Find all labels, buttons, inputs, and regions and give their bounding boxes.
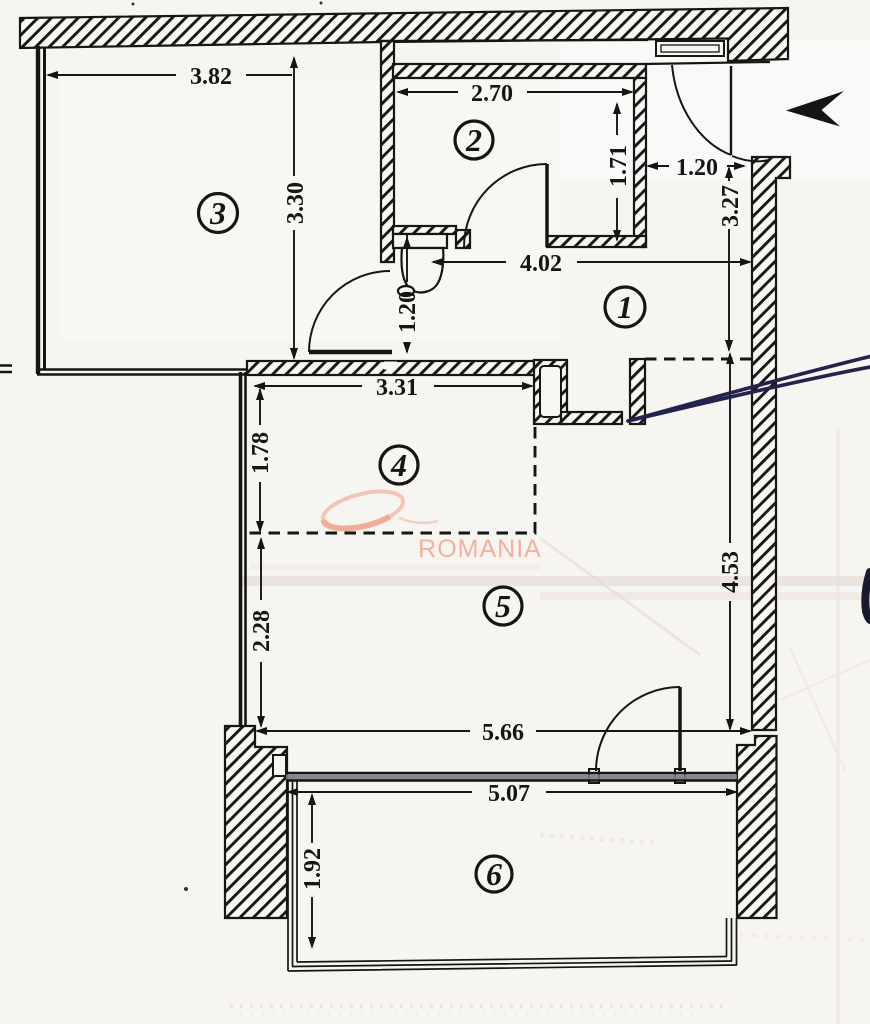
svg-text:1.78: 1.78 — [248, 432, 274, 474]
svg-text:6: 6 — [486, 856, 502, 892]
svg-text:3.31: 3.31 — [376, 375, 418, 401]
svg-text:4.53: 4.53 — [718, 551, 744, 593]
svg-text:2.28: 2.28 — [249, 610, 275, 652]
svg-text:4.02: 4.02 — [520, 251, 562, 277]
svg-text:3.27: 3.27 — [718, 185, 744, 227]
svg-text:1.20: 1.20 — [676, 155, 718, 181]
svg-text:4: 4 — [390, 447, 407, 483]
svg-text:1.92: 1.92 — [300, 848, 326, 890]
svg-text:ROMANIA: ROMANIA — [418, 535, 542, 563]
svg-text:2.70: 2.70 — [471, 81, 513, 107]
svg-text:5.07: 5.07 — [488, 781, 530, 807]
svg-text:3.30: 3.30 — [283, 182, 309, 224]
svg-text:5.66: 5.66 — [482, 720, 524, 746]
svg-text:3.82: 3.82 — [190, 64, 232, 90]
svg-text:5: 5 — [495, 588, 511, 624]
svg-text:1: 1 — [617, 289, 633, 325]
svg-text:1.71: 1.71 — [606, 145, 632, 187]
svg-text:3: 3 — [209, 195, 226, 231]
svg-text:2: 2 — [465, 122, 482, 158]
svg-text:1.20: 1.20 — [395, 291, 421, 333]
